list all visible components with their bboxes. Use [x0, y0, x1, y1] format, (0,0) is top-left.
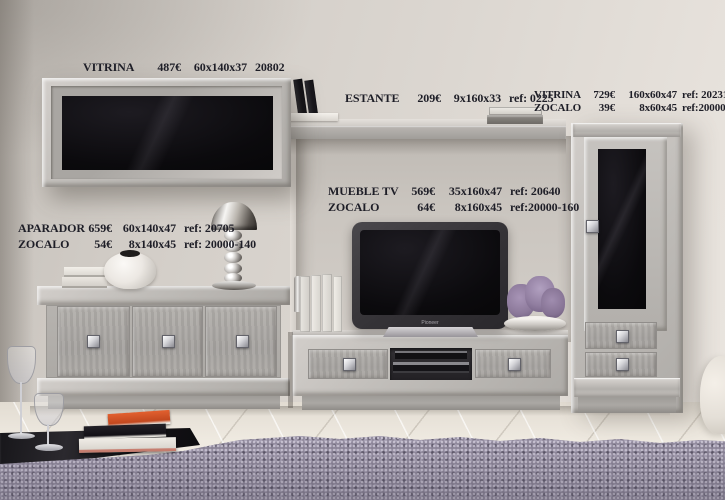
wine-glass: [33, 393, 64, 453]
product-price: 39€: [588, 102, 615, 114]
tall-vitrina-cabinet: [571, 123, 683, 413]
product-dims: 8x60x45: [615, 102, 677, 114]
drawer-handle: [343, 358, 356, 371]
product-ref: ref: 20640: [502, 184, 579, 199]
glass-bowl: [34, 393, 64, 426]
product-dims: 160x60x47: [615, 89, 677, 101]
aparador-bottom-molding: [37, 378, 290, 396]
product-dims: 8x140x45: [112, 237, 176, 252]
tv-unit: [292, 330, 568, 411]
book: [311, 275, 321, 332]
tall-vitrina-top-molding: [573, 123, 681, 137]
catalog-photo: Pioneer: [0, 0, 725, 500]
product-price: 64€: [405, 200, 435, 215]
tv-brand-label: Pioneer: [352, 320, 508, 326]
glass-reflection: [62, 96, 273, 170]
shelf-shadow: [290, 139, 566, 155]
lamp-stem-ball: [224, 252, 242, 263]
door-handle: [87, 335, 100, 348]
product-ref: ref:20000-60: [677, 102, 725, 114]
tv-stand: [383, 327, 478, 337]
drawer-handle: [508, 358, 521, 371]
book: [79, 437, 176, 453]
cabinet-seam-shadow: [288, 332, 293, 408]
product-ref: ref:20000-160: [502, 200, 579, 215]
product-name: MUEBLE TV: [328, 184, 405, 199]
product-name: ESTANTE: [345, 91, 399, 106]
annotation-tall-vitrina: VITRINA 729€ 160x60x47 ref: 20231 ZOCALO…: [534, 89, 725, 114]
vitrina-glass-door: [62, 96, 273, 170]
product-ref: ref: 20705: [176, 221, 256, 236]
shelf-front-edge: [285, 126, 566, 139]
product-name: VITRINA: [534, 89, 588, 101]
product-ref: ref: 20000-140: [176, 237, 256, 252]
door-handle: [236, 335, 249, 348]
product-dims: 8x160x45: [435, 200, 502, 215]
product-dims: 35x160x47: [435, 184, 502, 199]
lamp-base: [212, 281, 256, 290]
book: [487, 115, 543, 124]
annotation-mueble-tv: MUEBLE TV 569€ 35x160x47 ref: 20640 ZOCA…: [328, 184, 579, 215]
book: [322, 274, 332, 332]
television: Pioneer: [352, 222, 508, 329]
book: [288, 113, 338, 121]
tall-vitrina-bottom-molding: [574, 378, 680, 397]
product-ref: ref: 20231: [677, 89, 725, 101]
product-price: 487€: [145, 60, 181, 75]
dvd-player: [393, 362, 469, 373]
glass-foot: [35, 444, 63, 451]
product-name: ZOCALO: [328, 200, 405, 215]
glass-stem: [20, 382, 22, 434]
aparador-sideboard: [37, 286, 290, 410]
door-handle: [586, 220, 599, 233]
product-price: 209€: [399, 91, 441, 106]
product-dims: 60x140x47: [112, 221, 176, 236]
aparador-zocalo: [48, 396, 280, 409]
av-receiver: [395, 351, 467, 359]
product-dims: 60x140x37: [181, 60, 247, 75]
table-book-stack: [76, 412, 176, 453]
product-name: APARADOR: [18, 221, 80, 236]
tv-screen: [360, 230, 500, 315]
product-price: 659€: [80, 221, 112, 236]
decor-bowl: [504, 316, 566, 331]
book-stack: [62, 267, 107, 288]
tall-vitrina-zocalo: [578, 397, 676, 413]
screen-reflection: [360, 230, 500, 315]
lavender-bloom: [541, 288, 565, 318]
book: [62, 277, 107, 288]
wall-vitrina-cabinet: [42, 78, 291, 187]
glass-stem: [47, 424, 49, 446]
product-name: ZOCALO: [18, 237, 80, 252]
product-dims: 9x160x33: [441, 91, 501, 106]
book: [300, 276, 310, 332]
product-price: 569€: [405, 184, 435, 199]
wine-glass: [6, 346, 36, 440]
annotation-wall-vitrina: VITRINA 487€ 60x140x37 20802: [83, 60, 285, 75]
glass-reflection: [598, 149, 646, 309]
tall-vitrina-glass-door: [598, 149, 646, 309]
tv-unit-zocalo: [302, 396, 560, 410]
glass-foot: [8, 433, 35, 439]
product-ref: 20802: [247, 60, 285, 75]
product-price: 729€: [588, 89, 615, 101]
glass-bowl: [7, 346, 36, 384]
annotation-aparador: APARADOR 659€ 60x140x47 ref: 20705 ZOCAL…: [18, 221, 256, 252]
product-price: 54€: [80, 237, 112, 252]
drawer-handle: [616, 330, 629, 343]
product-name: VITRINA: [83, 60, 145, 75]
book: [64, 267, 106, 277]
white-vase: [104, 252, 156, 289]
book-row: [300, 274, 342, 332]
product-name: ZOCALO: [534, 102, 588, 114]
door-handle: [162, 335, 175, 348]
annotation-estante: ESTANTE 209€ 9x160x33 ref: 0225: [345, 91, 554, 106]
book: [333, 276, 342, 332]
drawer-handle: [616, 358, 629, 371]
